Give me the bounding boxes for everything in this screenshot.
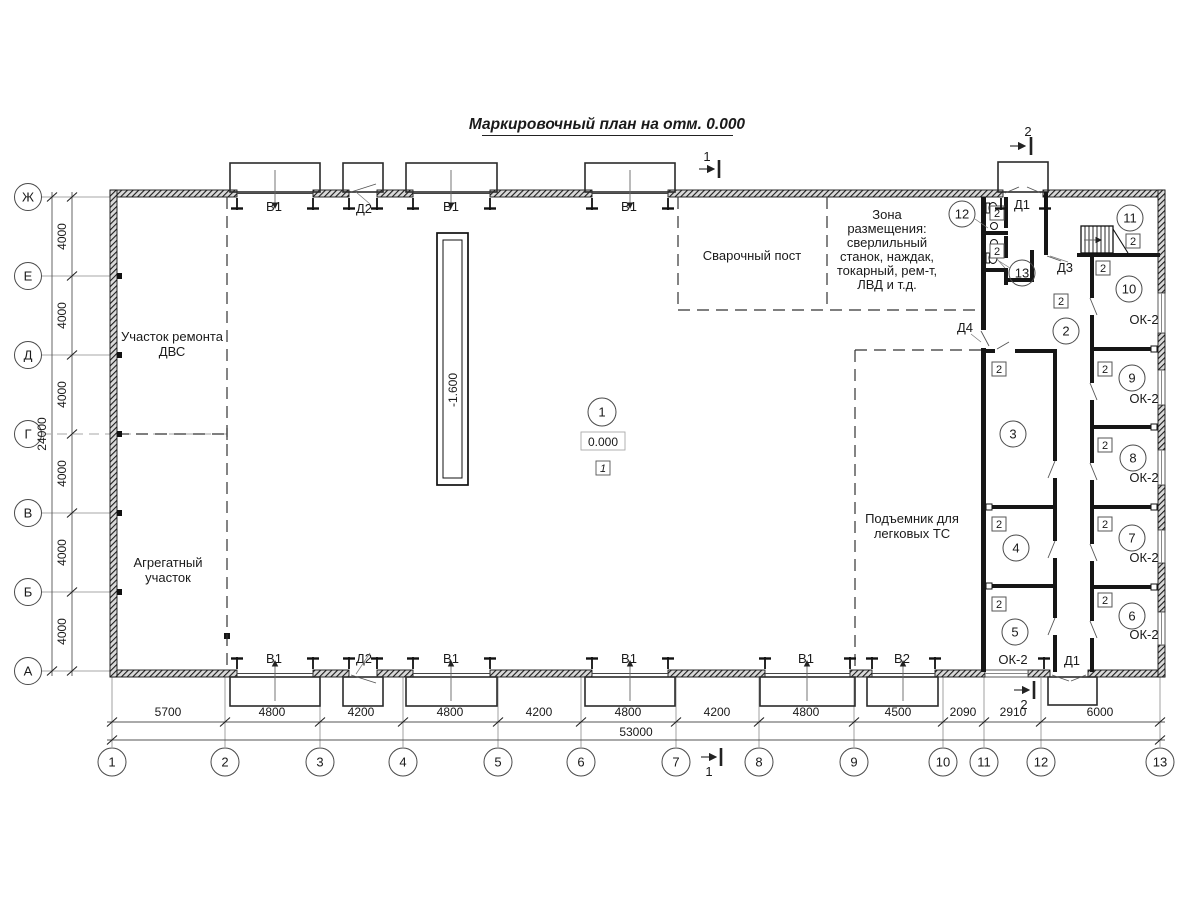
dim-span: 2090 bbox=[950, 705, 977, 719]
staircase bbox=[1081, 226, 1128, 253]
gate-label-v1: В1 bbox=[621, 651, 637, 666]
floor-plan-svg: Маркировочный план на отм. 0.000 Ж Е Д Г… bbox=[0, 0, 1200, 900]
zone-equipment: станок, наждак, bbox=[840, 249, 934, 264]
axis-number: 6 bbox=[577, 755, 584, 770]
dim-span: 4200 bbox=[704, 705, 731, 719]
dim-span: 4500 bbox=[885, 705, 912, 719]
room-number: 5 bbox=[1011, 625, 1018, 640]
axis-number: 11 bbox=[977, 755, 991, 770]
drawing-title: Маркировочный план на отм. 0.000 bbox=[469, 116, 746, 136]
inspection-pit: -1.600 bbox=[437, 233, 468, 485]
dim-4000: 4000 bbox=[55, 618, 69, 645]
door-label-d4: Д4 bbox=[957, 320, 973, 335]
dim-span: 4800 bbox=[615, 705, 642, 719]
axis-letter: Б bbox=[24, 585, 33, 600]
floor-level-label: 0.000 bbox=[588, 435, 618, 449]
axis-letter: Г bbox=[24, 427, 31, 442]
exterior-walls bbox=[110, 190, 1165, 677]
dim-total-horizontal: 53000 bbox=[619, 725, 653, 739]
zone-lift: Подъемник для bbox=[865, 511, 959, 526]
window-label-ok2: ОК-2 bbox=[1129, 550, 1158, 565]
dim-span: 4800 bbox=[437, 705, 464, 719]
gate-label-v1: В1 bbox=[266, 199, 282, 214]
axis-number: 12 bbox=[1034, 755, 1048, 770]
axis-number: 9 bbox=[850, 755, 857, 770]
dim-total-vertical: 24000 bbox=[35, 417, 49, 451]
floor-type-label: 2 bbox=[1102, 519, 1108, 531]
section-label: 1 bbox=[703, 149, 710, 164]
sink-icon bbox=[991, 223, 998, 230]
zone-engine-repair: ДВС bbox=[159, 344, 185, 359]
dim-span: 5700 bbox=[155, 705, 182, 719]
floor-type-label: 2 bbox=[1058, 296, 1064, 308]
horizontal-axes: 5700 4800 4200 4800 4200 4800 4200 4800 … bbox=[98, 677, 1174, 776]
room-number: 13 bbox=[1015, 266, 1029, 281]
floor-type-label: 1 bbox=[600, 463, 606, 475]
axis-number: 1 bbox=[108, 755, 115, 770]
zone-equipment: ЛВД и т.д. bbox=[857, 277, 917, 292]
window-label-ok2: ОК-2 bbox=[998, 652, 1027, 667]
dim-4000: 4000 bbox=[55, 381, 69, 408]
floor-type-label: 2 bbox=[996, 364, 1002, 376]
window-label-ok2: ОК-2 bbox=[1129, 312, 1158, 327]
room-number: 8 bbox=[1129, 451, 1136, 466]
axis-number: 4 bbox=[399, 755, 406, 770]
drawing-canvas: Маркировочный план на отм. 0.000 Ж Е Д Г… bbox=[0, 0, 1200, 900]
axis-number: 5 bbox=[494, 755, 501, 770]
room-number: 12 bbox=[955, 207, 969, 222]
dim-span: 4200 bbox=[348, 705, 375, 719]
dim-span: 6000 bbox=[1087, 705, 1114, 719]
floor-type-label: 2 bbox=[1100, 263, 1106, 275]
axis-number: 7 bbox=[672, 755, 679, 770]
zone-labels: Участок ремонта ДВС Агрегатный участок С… bbox=[121, 207, 959, 585]
door-label-d3: Д3 bbox=[1057, 260, 1073, 275]
gate-canopies bbox=[230, 162, 1097, 706]
axis-letter: Ж bbox=[22, 190, 34, 205]
floor-type-label: 2 bbox=[1102, 364, 1108, 376]
axis-number: 10 bbox=[936, 755, 950, 770]
zone-lift: легковых ТС bbox=[874, 526, 950, 541]
floor-type-label: 2 bbox=[1130, 236, 1136, 248]
dim-4000: 4000 bbox=[55, 539, 69, 566]
room-number: 10 bbox=[1122, 282, 1136, 297]
zone-equipment: Зона bbox=[872, 207, 902, 222]
axis-number: 13 bbox=[1153, 755, 1167, 770]
room-number: 7 bbox=[1128, 531, 1135, 546]
pit-level-label: -1.600 bbox=[446, 373, 460, 407]
dim-span: 4800 bbox=[259, 705, 286, 719]
axis-letter: А bbox=[24, 664, 33, 679]
window-label-ok2: ОК-2 bbox=[1129, 391, 1158, 406]
section-1-bottom: 1 bbox=[701, 748, 721, 779]
page-title: Маркировочный план на отм. 0.000 bbox=[469, 116, 746, 133]
gate-label-v1: В1 bbox=[266, 651, 282, 666]
room-number: 11 bbox=[1123, 211, 1137, 226]
dim-4000: 4000 bbox=[55, 460, 69, 487]
zone-equipment: сверлильный bbox=[847, 235, 927, 250]
gate-label-v1: В1 bbox=[443, 651, 459, 666]
section-1-top: 1 bbox=[699, 149, 719, 178]
zone-engine-repair: Участок ремонта bbox=[121, 329, 224, 344]
zone-equipment: токарный, рем-т, bbox=[837, 263, 937, 278]
axis-number: 3 bbox=[316, 755, 323, 770]
room-number: 2 bbox=[1062, 324, 1069, 339]
axis-number: 8 bbox=[755, 755, 762, 770]
door-label-d1: Д1 bbox=[1014, 197, 1030, 212]
dim-4000: 4000 bbox=[55, 223, 69, 250]
gate-label-v2: В2 bbox=[894, 651, 910, 666]
axis-letter: В bbox=[24, 506, 33, 521]
door-label-d1: Д1 bbox=[1064, 653, 1080, 668]
axis-number: 2 bbox=[221, 755, 228, 770]
dim-4000: 4000 bbox=[55, 302, 69, 329]
dim-span: 4200 bbox=[526, 705, 553, 719]
floor-type-label: 2 bbox=[996, 519, 1002, 531]
room-number: 9 bbox=[1128, 371, 1135, 386]
room-number: 6 bbox=[1128, 609, 1135, 624]
window-label-ok2: ОК-2 bbox=[1129, 470, 1158, 485]
axis-letter: Е bbox=[24, 269, 33, 284]
interior-walls bbox=[224, 192, 1160, 672]
floor-type-label: 2 bbox=[1102, 595, 1108, 607]
gate-label-v1: В1 bbox=[798, 651, 814, 666]
zone-aggregate: участок bbox=[145, 570, 191, 585]
section-label: 1 bbox=[705, 764, 712, 779]
zone-aggregate: Агрегатный bbox=[133, 555, 202, 570]
zone-equipment: размещения: bbox=[847, 221, 926, 236]
section-2-top: 2 bbox=[1010, 124, 1032, 155]
window-ok2-bottom bbox=[985, 670, 1028, 677]
section-label: 2 bbox=[1020, 697, 1027, 712]
floor-type-label: 2 bbox=[994, 246, 1000, 258]
zone-welding: Сварочный пост bbox=[703, 248, 801, 263]
gate-label-v1: В1 bbox=[443, 199, 459, 214]
axis-letter: Д bbox=[24, 348, 33, 363]
room-number: 4 bbox=[1012, 541, 1019, 556]
dim-span: 4800 bbox=[793, 705, 820, 719]
room-number: 3 bbox=[1009, 427, 1016, 442]
room-number: 1 bbox=[598, 405, 605, 420]
gate-label-v1: В1 bbox=[621, 199, 637, 214]
floor-type-label: 2 bbox=[1102, 440, 1108, 452]
floor-type-label: 2 bbox=[996, 599, 1002, 611]
section-label: 2 bbox=[1024, 124, 1031, 139]
floor-type-label: 2 bbox=[994, 208, 1000, 220]
